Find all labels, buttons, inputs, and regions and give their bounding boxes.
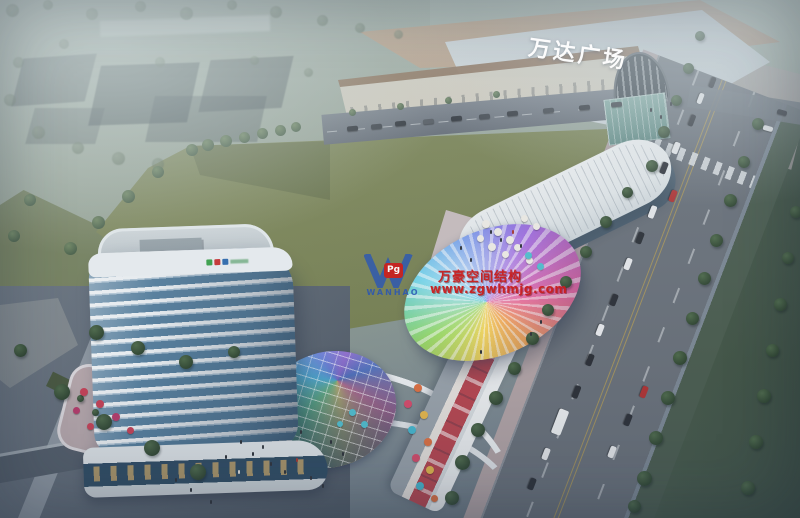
architectural-rendering: 万达广场 Pg WANHAO 万豪空间结构 www.zgwhmjg.com [0, 0, 800, 518]
logo-dot [206, 259, 212, 265]
logo-dot [214, 259, 220, 265]
tower-facade [88, 247, 299, 460]
background-building [145, 96, 267, 142]
logo-text-blur [230, 259, 248, 264]
tower-podium [83, 439, 329, 497]
watermark: Pg WANHAO 万豪空间结构 www.zgwhmjg.com [364, 252, 574, 304]
background-building [11, 54, 97, 107]
tower-building [87, 219, 301, 516]
background-building [25, 108, 105, 144]
watermark-url-text: www.zgwhmjg.com [430, 282, 567, 296]
mall-glass-facade [603, 92, 670, 145]
tower-logo-icon [206, 254, 250, 270]
watermark-logo-name: WANHAO [360, 288, 426, 297]
logo-dot [222, 259, 228, 265]
watermark-logo-icon: Pg WANHAO [364, 254, 422, 300]
watermark-badge: Pg [384, 263, 403, 278]
